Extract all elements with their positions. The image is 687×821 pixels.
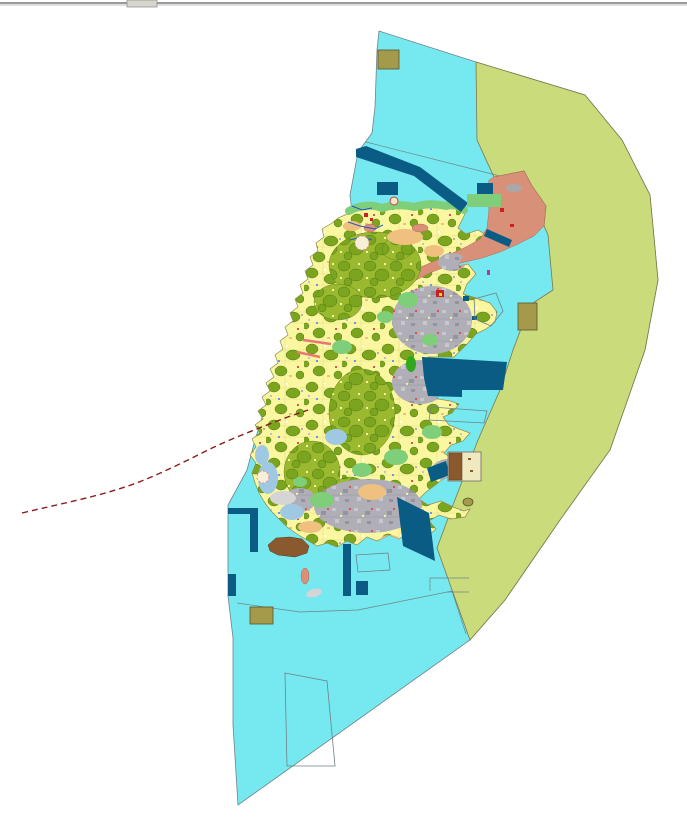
tan-patch <box>298 521 322 533</box>
salmon-islet <box>301 568 309 584</box>
green-patch <box>422 425 442 439</box>
bright-green-patch <box>406 356 416 372</box>
dashed-circle-feature <box>355 236 369 250</box>
shallow-water-patch <box>255 445 269 465</box>
green-patch <box>310 492 334 508</box>
green-parcel <box>467 194 501 207</box>
salmon-patch <box>412 224 428 232</box>
red-mark <box>500 208 504 212</box>
green-patch <box>398 292 418 308</box>
red-mark <box>510 224 514 227</box>
harbor-dot <box>463 296 469 301</box>
map-pane <box>0 0 687 821</box>
green-patch <box>422 334 438 346</box>
small-marked-feature <box>390 197 398 205</box>
khaki-parcel <box>250 607 273 624</box>
green-patch <box>377 311 393 323</box>
splitter-handle[interactable] <box>127 0 157 7</box>
khaki-parcel <box>518 303 537 330</box>
tan-patch <box>358 484 386 500</box>
map-canvas[interactable] <box>0 0 687 821</box>
khaki-patch <box>463 498 473 506</box>
forest-parcel-cluster <box>314 284 362 320</box>
west-strip <box>228 574 236 596</box>
green-patch <box>352 463 372 477</box>
khaki-parcel <box>378 50 399 69</box>
shallow-water-patch <box>325 429 347 445</box>
dashed-circle-feature <box>257 471 269 483</box>
pier-strip <box>343 544 351 596</box>
window-divider <box>0 2 687 6</box>
harbor-rect <box>377 182 398 195</box>
green-patch <box>293 477 307 487</box>
tan-patch <box>343 221 361 231</box>
harbor-square <box>356 581 368 595</box>
green-patch <box>384 449 408 465</box>
shoal-patch <box>270 491 296 505</box>
shallow-water-patch <box>280 504 304 520</box>
mixed-parcel <box>448 452 481 481</box>
gray-patch <box>506 184 522 192</box>
tan-patch <box>424 245 444 257</box>
green-patch <box>332 340 352 354</box>
